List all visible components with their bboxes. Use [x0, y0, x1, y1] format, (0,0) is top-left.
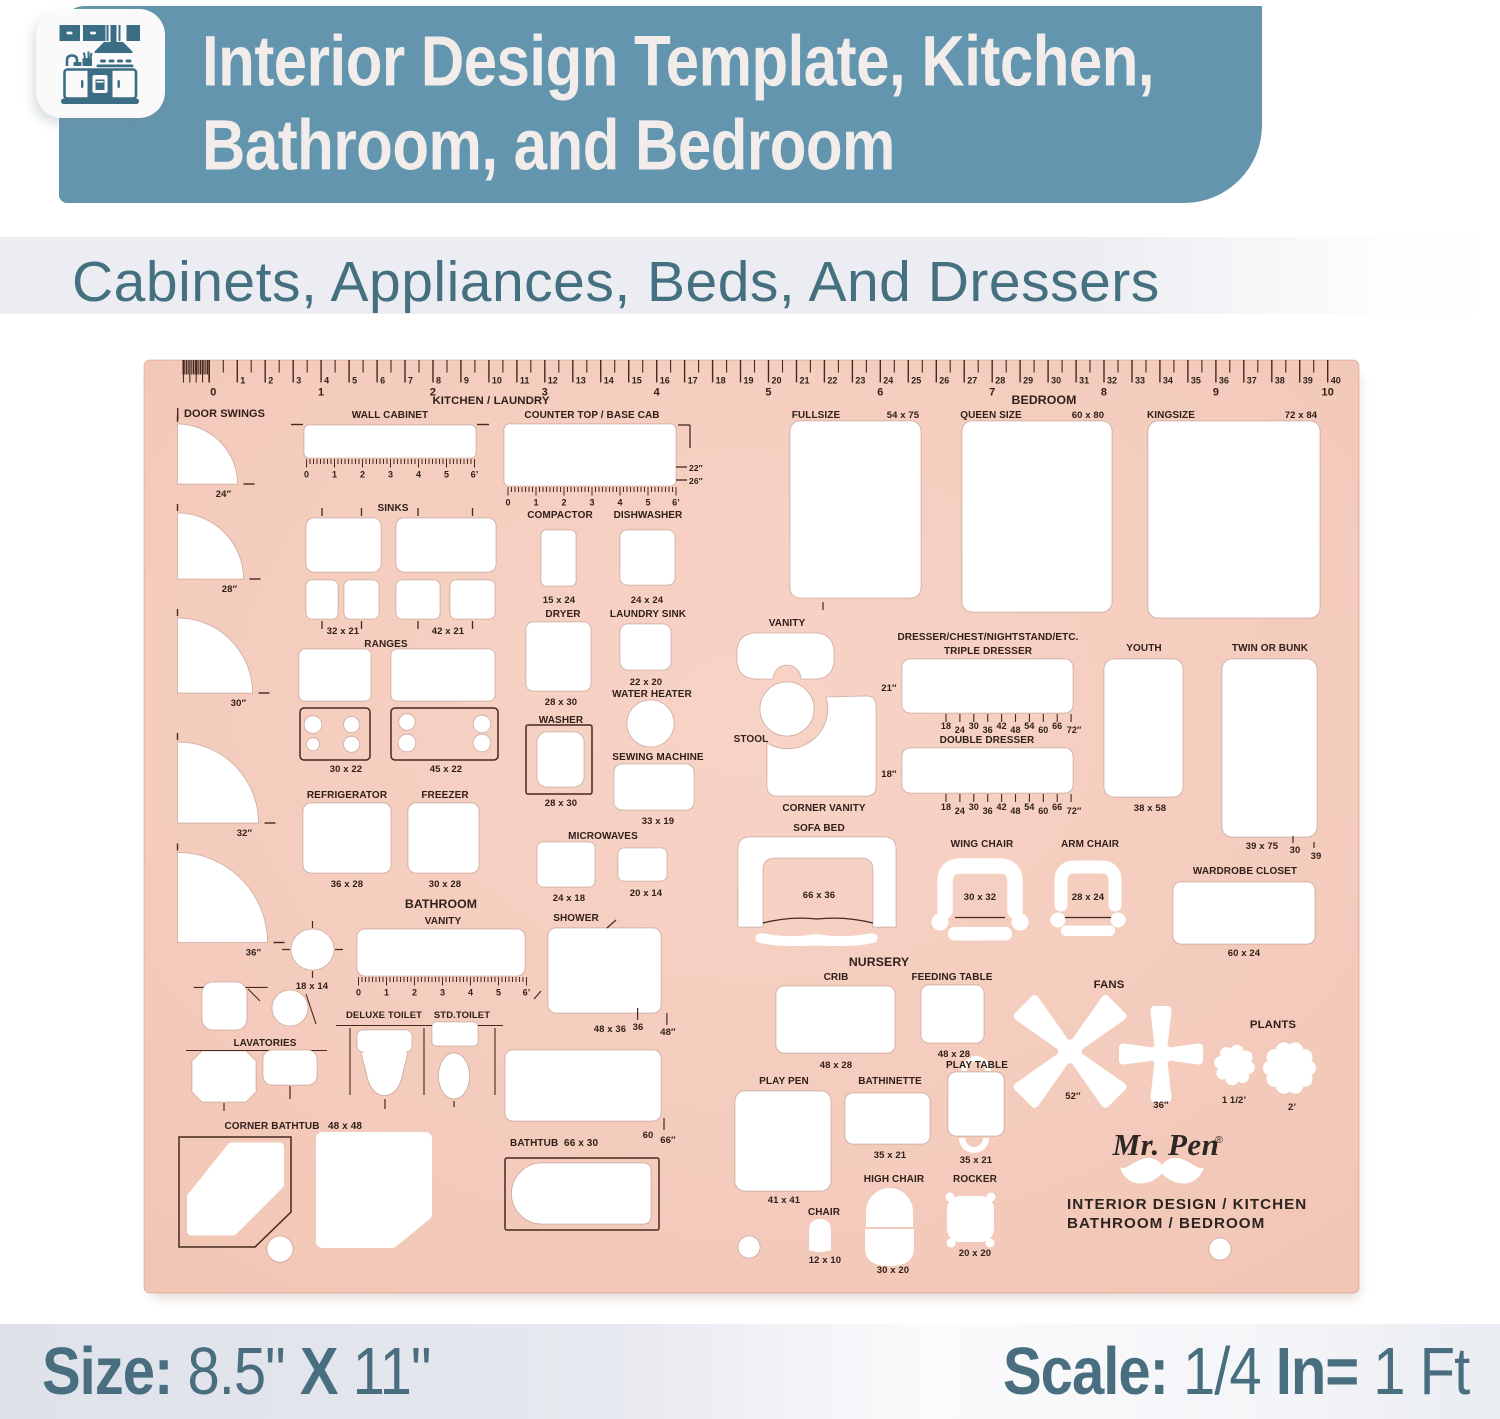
svg-text:WARDROBE CLOSET: WARDROBE CLOSET	[1193, 866, 1297, 877]
svg-text:6’: 6’	[523, 988, 531, 998]
svg-text:48 x 36: 48 x 36	[594, 1024, 626, 1035]
svg-text:60 x 24: 60 x 24	[1228, 948, 1261, 959]
svg-text:WATER HEATER: WATER HEATER	[612, 689, 692, 700]
svg-text:STOOL: STOOL	[734, 734, 769, 745]
svg-text:7: 7	[408, 376, 413, 386]
svg-text:3: 3	[589, 498, 594, 508]
svg-text:48: 48	[1010, 806, 1020, 816]
svg-text:12 x 10: 12 x 10	[809, 1255, 841, 1266]
svg-text:27: 27	[967, 376, 977, 386]
svg-text:30″: 30″	[231, 698, 247, 709]
svg-text:BEDROOM: BEDROOM	[1012, 393, 1077, 407]
svg-text:5: 5	[352, 376, 357, 386]
svg-text:TRIPLE DRESSER: TRIPLE DRESSER	[944, 646, 1033, 657]
svg-text:34: 34	[1163, 376, 1173, 386]
svg-text:4: 4	[654, 387, 660, 399]
svg-text:NURSERY: NURSERY	[849, 955, 909, 969]
svg-text:60: 60	[1038, 725, 1048, 735]
svg-text:41 x 41: 41 x 41	[768, 1195, 801, 1206]
svg-text:1: 1	[384, 988, 389, 998]
svg-text:COMPACTOR: COMPACTOR	[527, 510, 593, 521]
svg-text:8: 8	[1101, 387, 1107, 399]
svg-text:18″: 18″	[881, 769, 897, 780]
svg-text:RANGES: RANGES	[364, 639, 408, 650]
svg-text:6: 6	[877, 387, 883, 399]
svg-text:20 x 20: 20 x 20	[959, 1248, 991, 1259]
svg-text:1 1/2’: 1 1/2’	[1222, 1095, 1246, 1106]
svg-text:24 x 18: 24 x 18	[553, 893, 585, 904]
svg-text:48: 48	[1010, 725, 1020, 735]
svg-text:20: 20	[772, 376, 782, 386]
svg-text:16: 16	[660, 376, 670, 386]
svg-text:54 x 75: 54 x 75	[887, 410, 920, 421]
svg-text:35 x 21: 35 x 21	[960, 1155, 993, 1166]
svg-text:BATHROOM / BEDROOM: BATHROOM / BEDROOM	[1067, 1215, 1265, 1232]
svg-text:ARM CHAIR: ARM CHAIR	[1061, 839, 1120, 850]
svg-text:48 x 28: 48 x 28	[820, 1060, 852, 1071]
svg-text:2: 2	[268, 376, 273, 386]
svg-text:DOUBLE DRESSER: DOUBLE DRESSER	[940, 735, 1035, 746]
svg-text:30: 30	[969, 721, 979, 731]
svg-text:31: 31	[1079, 376, 1089, 386]
svg-text:38 x 58: 38 x 58	[1134, 803, 1166, 814]
svg-text:30 x 20: 30 x 20	[877, 1265, 909, 1276]
svg-text:29: 29	[1023, 376, 1033, 386]
svg-text:30: 30	[969, 802, 979, 812]
svg-text:42: 42	[996, 721, 1006, 731]
svg-text:3: 3	[388, 470, 393, 480]
svg-text:1: 1	[240, 376, 245, 386]
svg-text:PLAY TABLE: PLAY TABLE	[946, 1060, 1008, 1071]
svg-text:®: ®	[1215, 1135, 1223, 1146]
svg-text:30: 30	[1290, 845, 1301, 856]
svg-text:1: 1	[332, 470, 337, 480]
svg-text:SEWING MACHINE: SEWING MACHINE	[612, 752, 704, 763]
svg-text:32 x 21: 32 x 21	[327, 626, 360, 637]
svg-text:SINKS: SINKS	[377, 503, 408, 514]
svg-text:YOUTH: YOUTH	[1126, 643, 1162, 654]
svg-text:22″: 22″	[689, 463, 703, 473]
svg-text:15 x 24: 15 x 24	[543, 595, 576, 606]
svg-text:CORNER BATHTUB: CORNER BATHTUB	[224, 1121, 319, 1132]
svg-text:LAUNDRY SINK: LAUNDRY SINK	[610, 609, 687, 620]
svg-text:66″: 66″	[660, 1135, 676, 1146]
svg-text:SHOWER: SHOWER	[553, 913, 599, 924]
svg-text:20 x 14: 20 x 14	[630, 888, 663, 899]
svg-text:4: 4	[617, 498, 622, 508]
svg-text:DRYER: DRYER	[545, 609, 581, 620]
svg-text:STD.TOILET: STD.TOILET	[434, 1010, 490, 1021]
svg-text:KITCHEN / LAUNDRY: KITCHEN / LAUNDRY	[432, 395, 549, 407]
svg-text:39: 39	[1303, 376, 1313, 386]
svg-text:30 x 32: 30 x 32	[964, 892, 996, 903]
svg-text:6’: 6’	[471, 470, 479, 480]
svg-text:3: 3	[296, 376, 301, 386]
svg-text:PLAY PEN: PLAY PEN	[759, 1076, 809, 1087]
svg-text:21″: 21″	[881, 683, 897, 694]
svg-text:28″: 28″	[222, 584, 238, 595]
svg-text:2: 2	[561, 498, 566, 508]
svg-text:35: 35	[1191, 376, 1201, 386]
svg-text:60 x 80: 60 x 80	[1072, 410, 1104, 421]
svg-text:2: 2	[360, 470, 365, 480]
svg-text:38: 38	[1275, 376, 1285, 386]
svg-text:25: 25	[911, 376, 921, 386]
svg-text:4: 4	[324, 376, 329, 386]
svg-text:Mr. Pen: Mr. Pen	[1112, 1127, 1220, 1162]
svg-text:18: 18	[941, 802, 951, 812]
svg-text:48 x 28: 48 x 28	[938, 1049, 970, 1060]
svg-text:28 x 24: 28 x 24	[1072, 892, 1105, 903]
svg-text:66 x 36: 66 x 36	[803, 890, 835, 901]
svg-text:3: 3	[440, 988, 445, 998]
svg-text:SOFA BED: SOFA BED	[793, 823, 845, 834]
svg-text:DELUXE TOILET: DELUXE TOILET	[346, 1010, 422, 1021]
svg-text:QUEEN SIZE: QUEEN SIZE	[960, 410, 1022, 421]
svg-text:72″: 72″	[1067, 725, 1082, 735]
svg-text:CHAIR: CHAIR	[808, 1207, 841, 1218]
svg-text:36: 36	[1219, 376, 1229, 386]
svg-text:72 x 84: 72 x 84	[1285, 410, 1318, 421]
svg-text:BATHTUB 66 x 30: BATHTUB 66 x 30	[510, 1138, 598, 1149]
svg-text:18: 18	[941, 721, 951, 731]
svg-text:MICROWAVES: MICROWAVES	[568, 831, 638, 842]
svg-text:30 x 22: 30 x 22	[330, 764, 362, 775]
svg-text:0: 0	[304, 470, 309, 480]
svg-text:0: 0	[210, 387, 216, 399]
svg-text:4: 4	[416, 470, 421, 480]
svg-text:12: 12	[548, 376, 558, 386]
svg-text:2’: 2’	[1288, 1102, 1296, 1113]
svg-text:5: 5	[765, 387, 771, 399]
svg-text:6: 6	[380, 376, 385, 386]
svg-text:24: 24	[883, 376, 893, 386]
svg-text:36: 36	[633, 1022, 644, 1033]
svg-text:10: 10	[1322, 387, 1334, 399]
svg-text:5: 5	[444, 470, 449, 480]
svg-text:24 x 24: 24 x 24	[631, 595, 664, 606]
svg-text:FREEZER: FREEZER	[421, 790, 469, 801]
svg-text:24: 24	[955, 806, 965, 816]
svg-text:ROCKER: ROCKER	[953, 1174, 998, 1185]
svg-text:CRIB: CRIB	[824, 972, 849, 983]
svg-text:HIGH CHAIR: HIGH CHAIR	[864, 1174, 925, 1185]
svg-text:1: 1	[533, 498, 538, 508]
svg-text:37: 37	[1247, 376, 1257, 386]
svg-text:18 x 14: 18 x 14	[296, 981, 329, 992]
svg-text:7: 7	[989, 387, 995, 399]
svg-text:CORNER VANITY: CORNER VANITY	[782, 803, 866, 814]
svg-text:5: 5	[496, 988, 501, 998]
svg-text:0: 0	[505, 498, 510, 508]
svg-text:28 x 30: 28 x 30	[545, 798, 577, 809]
svg-text:32″: 32″	[237, 828, 253, 839]
svg-text:30 x 28: 30 x 28	[429, 879, 461, 890]
svg-text:39: 39	[1311, 851, 1322, 862]
svg-text:DISHWASHER: DISHWASHER	[614, 510, 683, 521]
svg-text:15: 15	[632, 376, 642, 386]
svg-text:VANITY: VANITY	[769, 618, 806, 629]
svg-text:10: 10	[492, 376, 502, 386]
svg-text:LAVATORIES: LAVATORIES	[233, 1038, 296, 1049]
svg-text:WALL CABINET: WALL CABINET	[352, 410, 429, 421]
svg-text:WING CHAIR: WING CHAIR	[951, 839, 1014, 850]
svg-text:36″: 36″	[1153, 1100, 1169, 1111]
svg-text:KINGSIZE: KINGSIZE	[1147, 410, 1195, 421]
svg-text:PLANTS: PLANTS	[1250, 1019, 1296, 1031]
svg-text:BATHROOM: BATHROOM	[405, 897, 477, 911]
svg-text:FEEDING TABLE: FEEDING TABLE	[911, 972, 992, 983]
svg-text:48″: 48″	[660, 1027, 676, 1038]
svg-text:52″: 52″	[1065, 1091, 1081, 1102]
svg-text:23: 23	[855, 376, 865, 386]
svg-text:11: 11	[520, 376, 530, 386]
svg-text:DRESSER/CHEST/NIGHTSTAND/ETC.: DRESSER/CHEST/NIGHTSTAND/ETC.	[897, 632, 1078, 643]
svg-text:8: 8	[436, 376, 441, 386]
svg-text:35 x 21: 35 x 21	[874, 1150, 907, 1161]
svg-text:19: 19	[744, 376, 754, 386]
svg-text:14: 14	[604, 376, 614, 386]
svg-text:17: 17	[688, 376, 698, 386]
svg-text:24: 24	[955, 725, 965, 735]
svg-text:66: 66	[1052, 721, 1062, 731]
svg-text:26″: 26″	[689, 476, 703, 486]
svg-text:60: 60	[1038, 806, 1048, 816]
svg-text:30: 30	[1051, 376, 1061, 386]
svg-text:28 x 30: 28 x 30	[545, 697, 577, 708]
svg-text:54: 54	[1024, 802, 1034, 812]
svg-text:33 x 19: 33 x 19	[642, 816, 674, 827]
svg-text:22: 22	[827, 376, 837, 386]
svg-text:36: 36	[983, 806, 993, 816]
svg-text:REFRIGERATOR: REFRIGERATOR	[307, 790, 388, 801]
svg-text:36: 36	[983, 725, 993, 735]
svg-text:26: 26	[939, 376, 949, 386]
svg-text:TWIN OR BUNK: TWIN OR BUNK	[1232, 643, 1309, 654]
svg-text:5: 5	[645, 498, 650, 508]
svg-text:BATHINETTE: BATHINETTE	[858, 1076, 922, 1087]
svg-text:6’: 6’	[672, 498, 680, 508]
svg-text:21: 21	[800, 376, 810, 386]
svg-text:DOOR SWINGS: DOOR SWINGS	[184, 408, 265, 420]
svg-text:36 x 28: 36 x 28	[331, 879, 363, 890]
svg-text:VANITY: VANITY	[425, 916, 462, 927]
svg-text:INTERIOR DESIGN / KITCHEN: INTERIOR DESIGN / KITCHEN	[1067, 1196, 1307, 1213]
svg-text:FULLSIZE: FULLSIZE	[792, 410, 841, 421]
svg-text:13: 13	[576, 376, 586, 386]
svg-text:2: 2	[412, 988, 417, 998]
svg-text:42: 42	[996, 802, 1006, 812]
svg-text:4: 4	[468, 988, 473, 998]
svg-text:72″: 72″	[1067, 806, 1082, 816]
svg-text:COUNTER TOP / BASE CAB: COUNTER TOP / BASE CAB	[524, 410, 659, 421]
svg-text:60: 60	[643, 1130, 654, 1141]
svg-text:45 x 22: 45 x 22	[430, 764, 462, 775]
svg-text:48 x 48: 48 x 48	[328, 1121, 362, 1132]
svg-text:FANS: FANS	[1094, 979, 1125, 991]
svg-text:9: 9	[1213, 387, 1219, 399]
svg-text:40: 40	[1331, 376, 1341, 386]
svg-text:32: 32	[1107, 376, 1117, 386]
svg-text:24″: 24″	[216, 489, 232, 500]
svg-text:9: 9	[464, 376, 469, 386]
svg-text:1: 1	[318, 387, 324, 399]
svg-text:36″: 36″	[246, 948, 262, 959]
svg-text:33: 33	[1135, 376, 1145, 386]
svg-text:22 x 20: 22 x 20	[630, 677, 662, 688]
svg-text:39 x 75: 39 x 75	[1246, 841, 1279, 852]
svg-text:66: 66	[1052, 802, 1062, 812]
svg-text:28: 28	[995, 376, 1005, 386]
svg-text:0: 0	[356, 988, 361, 998]
svg-text:54: 54	[1024, 721, 1034, 731]
svg-text:42 x 21: 42 x 21	[432, 626, 465, 637]
svg-text:18: 18	[716, 376, 726, 386]
